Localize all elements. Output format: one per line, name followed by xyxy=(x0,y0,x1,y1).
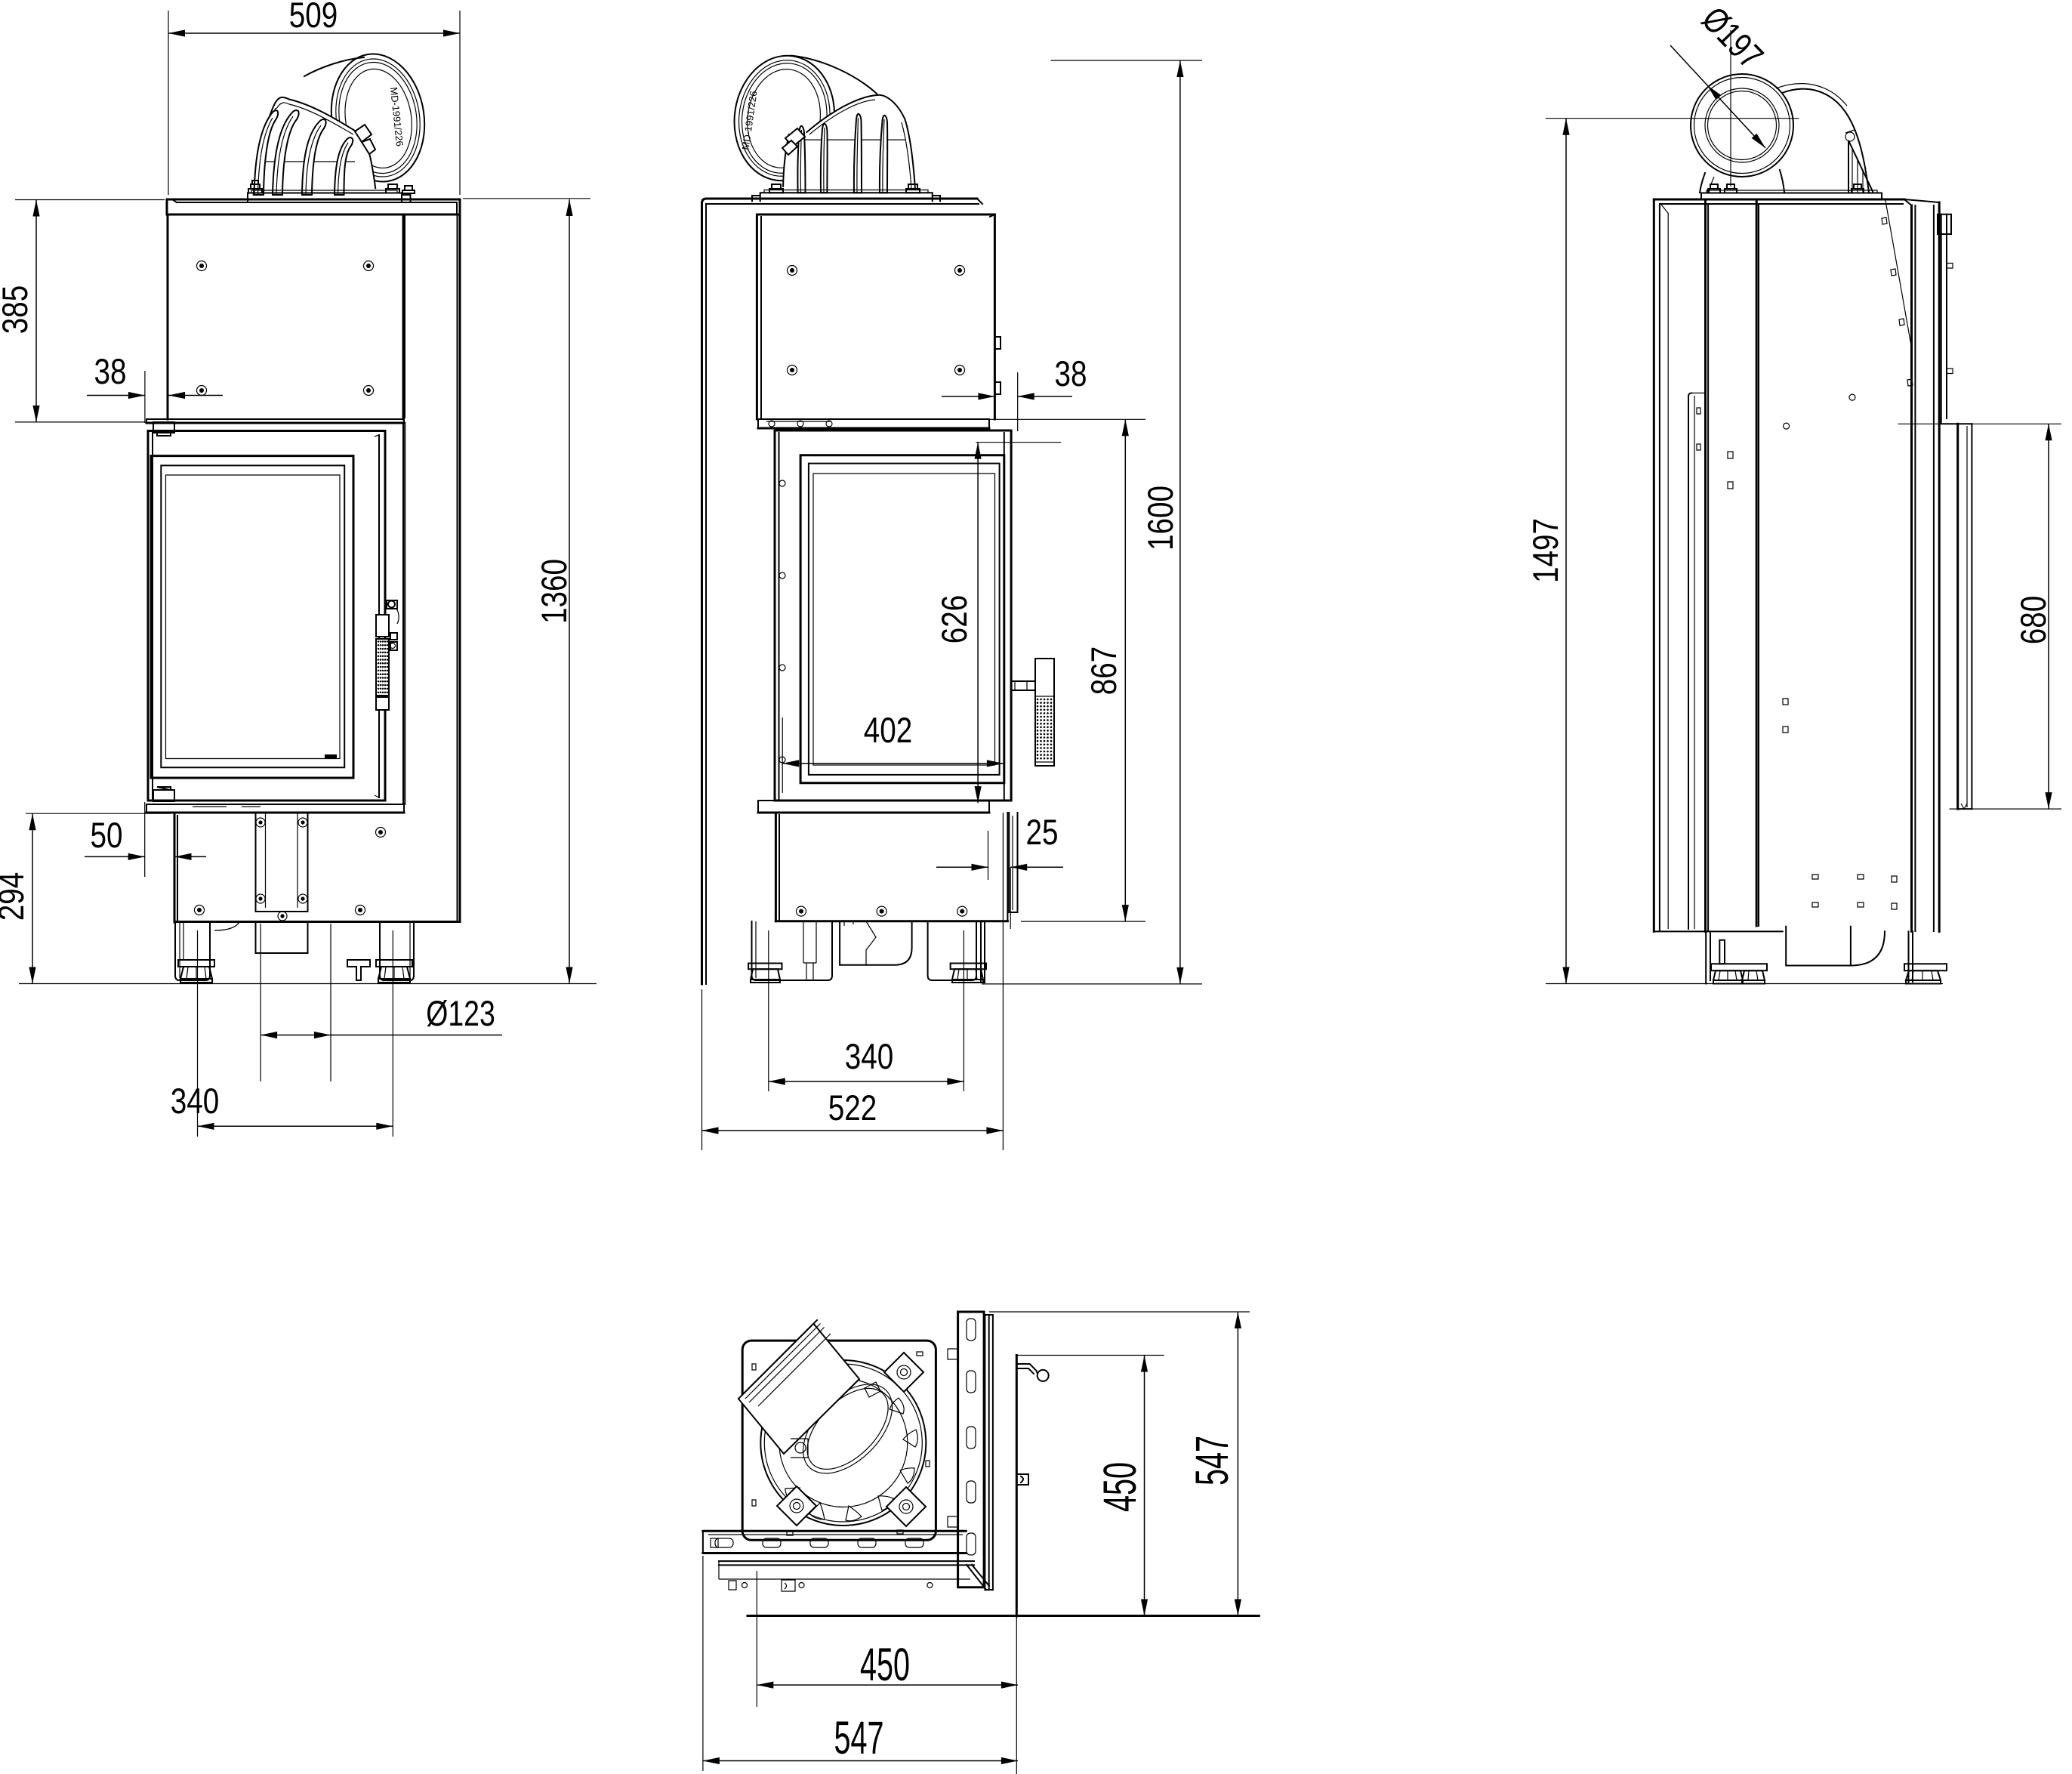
svg-text:294: 294 xyxy=(0,872,31,921)
svg-text:450: 450 xyxy=(860,1639,910,1690)
svg-text:38: 38 xyxy=(1055,353,1087,393)
svg-text:Ø197: Ø197 xyxy=(1694,0,1771,76)
svg-text:547: 547 xyxy=(1186,1436,1238,1486)
svg-text:547: 547 xyxy=(834,1712,884,1763)
svg-text:340: 340 xyxy=(845,1036,894,1076)
svg-text:450: 450 xyxy=(1094,1462,1145,1512)
svg-text:680: 680 xyxy=(2013,596,2053,645)
svg-text:402: 402 xyxy=(864,710,913,750)
svg-text:1600: 1600 xyxy=(1140,486,1180,551)
svg-text:MD-1991/226: MD-1991/226 xyxy=(388,87,405,147)
svg-text:Ø123: Ø123 xyxy=(426,993,495,1033)
svg-text:385: 385 xyxy=(0,285,35,335)
svg-text:522: 522 xyxy=(828,1088,877,1128)
svg-text:25: 25 xyxy=(1026,812,1059,852)
svg-text:340: 340 xyxy=(171,1081,220,1121)
svg-text:50: 50 xyxy=(91,815,123,855)
svg-text:1497: 1497 xyxy=(1525,518,1565,583)
svg-text:509: 509 xyxy=(289,0,338,35)
svg-text:626: 626 xyxy=(934,595,974,644)
svg-text:867: 867 xyxy=(1084,646,1124,696)
svg-text:1360: 1360 xyxy=(534,559,574,624)
svg-text:38: 38 xyxy=(94,351,127,391)
